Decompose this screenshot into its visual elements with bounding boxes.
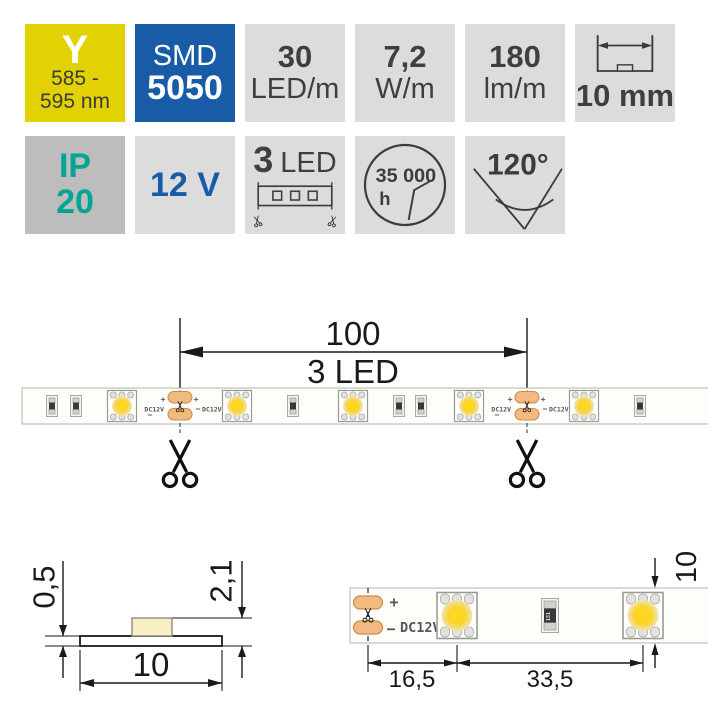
scissors-icon — [163, 440, 196, 486]
svg-text:+: + — [161, 395, 166, 404]
svg-text:−: − — [196, 405, 201, 414]
led-module — [455, 391, 484, 422]
dim-cut-to-led-label: 16,5 — [389, 666, 436, 693]
svg-text:+: + — [541, 395, 546, 404]
led-module — [223, 391, 252, 422]
svg-text:DC12V: DC12V — [549, 406, 569, 414]
svg-text:+: + — [194, 395, 199, 404]
led-module — [570, 391, 599, 422]
svg-text:−: − — [543, 405, 548, 414]
resistor: 151 — [542, 599, 559, 633]
dim-width-label: 10 — [133, 646, 170, 683]
length-dimension: 100 3 LED — [180, 315, 527, 390]
dim-detail-width-label: 10 — [671, 551, 703, 583]
dim-height-label: 2,1 — [204, 559, 239, 602]
led-module — [437, 593, 477, 639]
svg-text:+: + — [508, 395, 513, 404]
pcb-cross-section — [80, 636, 222, 646]
resistor — [288, 396, 299, 417]
svg-text:−: − — [386, 620, 395, 638]
led-module — [339, 391, 368, 422]
resistor — [416, 396, 427, 417]
svg-text:DC12V: DC12V — [202, 406, 222, 414]
led-module — [108, 391, 137, 422]
resistor — [71, 396, 82, 417]
dim-3led-label: 3 LED — [307, 353, 399, 390]
led-cross-section — [132, 618, 172, 636]
scissors-icon — [510, 440, 543, 486]
cross-section-diagram: 0,5 2,1 10 — [27, 559, 253, 691]
dim-100-label: 100 — [325, 315, 380, 352]
svg-text:−: − — [148, 411, 153, 420]
technical-drawings: ++DC12V−−DC12V++DC12V−−DC12V 100 3 LED 0… — [0, 0, 708, 708]
svg-text:+: + — [389, 593, 398, 611]
resistor — [394, 396, 405, 417]
strip-length-diagram: ++DC12V−−DC12V++DC12V−−DC12V 100 3 LED — [22, 315, 708, 486]
led-strip-datasheet: Y 585 - 595 nm SMD 5050 30 LED/m 7,2 W/m… — [0, 0, 708, 708]
svg-text:−: − — [495, 411, 500, 420]
svg-text:DC12V: DC12V — [400, 620, 441, 636]
detail-top-view-diagram: +−DC12V151 16,5 33,5 10 — [350, 551, 708, 693]
svg-text:151: 151 — [546, 612, 552, 621]
dim-led-spacing-label: 33,5 — [527, 666, 574, 693]
led-module — [623, 593, 663, 639]
dim-thickness-label: 0,5 — [27, 565, 62, 608]
resistor — [47, 396, 58, 417]
resistor — [635, 396, 646, 417]
